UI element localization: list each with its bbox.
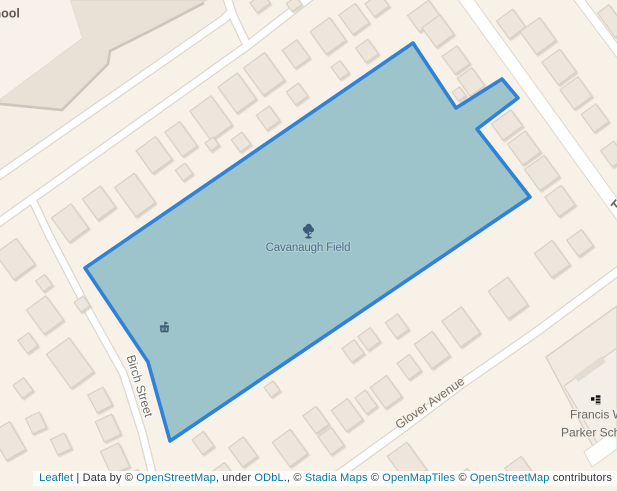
- svg-text:hool: hool: [0, 6, 20, 20]
- svg-text:Parker Scho: Parker Scho: [561, 426, 617, 440]
- svg-text:Cavanaugh Field: Cavanaugh Field: [266, 242, 351, 254]
- svg-text:Francis W: Francis W: [570, 408, 617, 422]
